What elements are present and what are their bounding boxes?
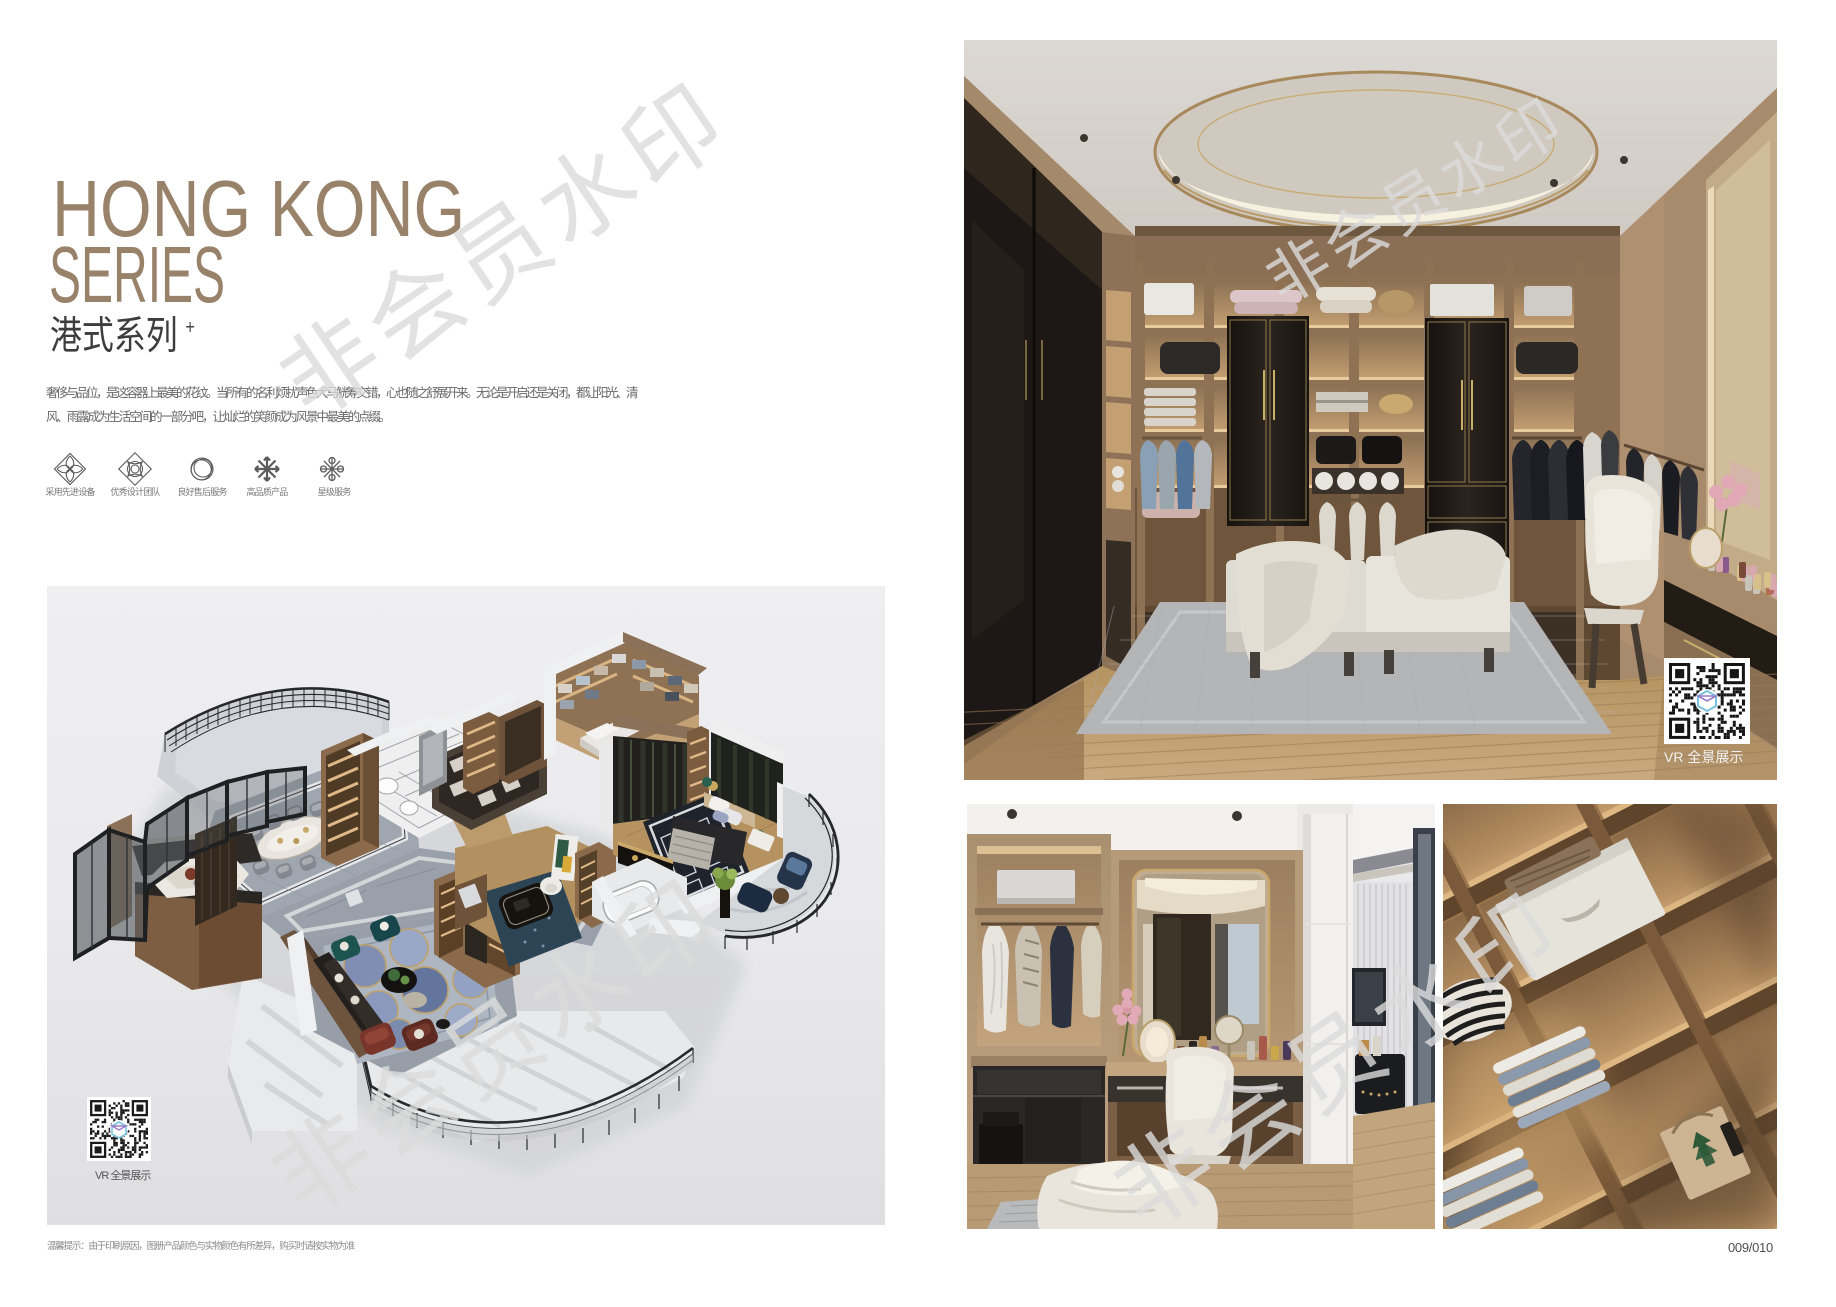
svg-text:VR 全景展示: VR 全景展示 [95,1168,151,1182]
svg-text:VR 全景展示: VR 全景展示 [1664,749,1743,765]
